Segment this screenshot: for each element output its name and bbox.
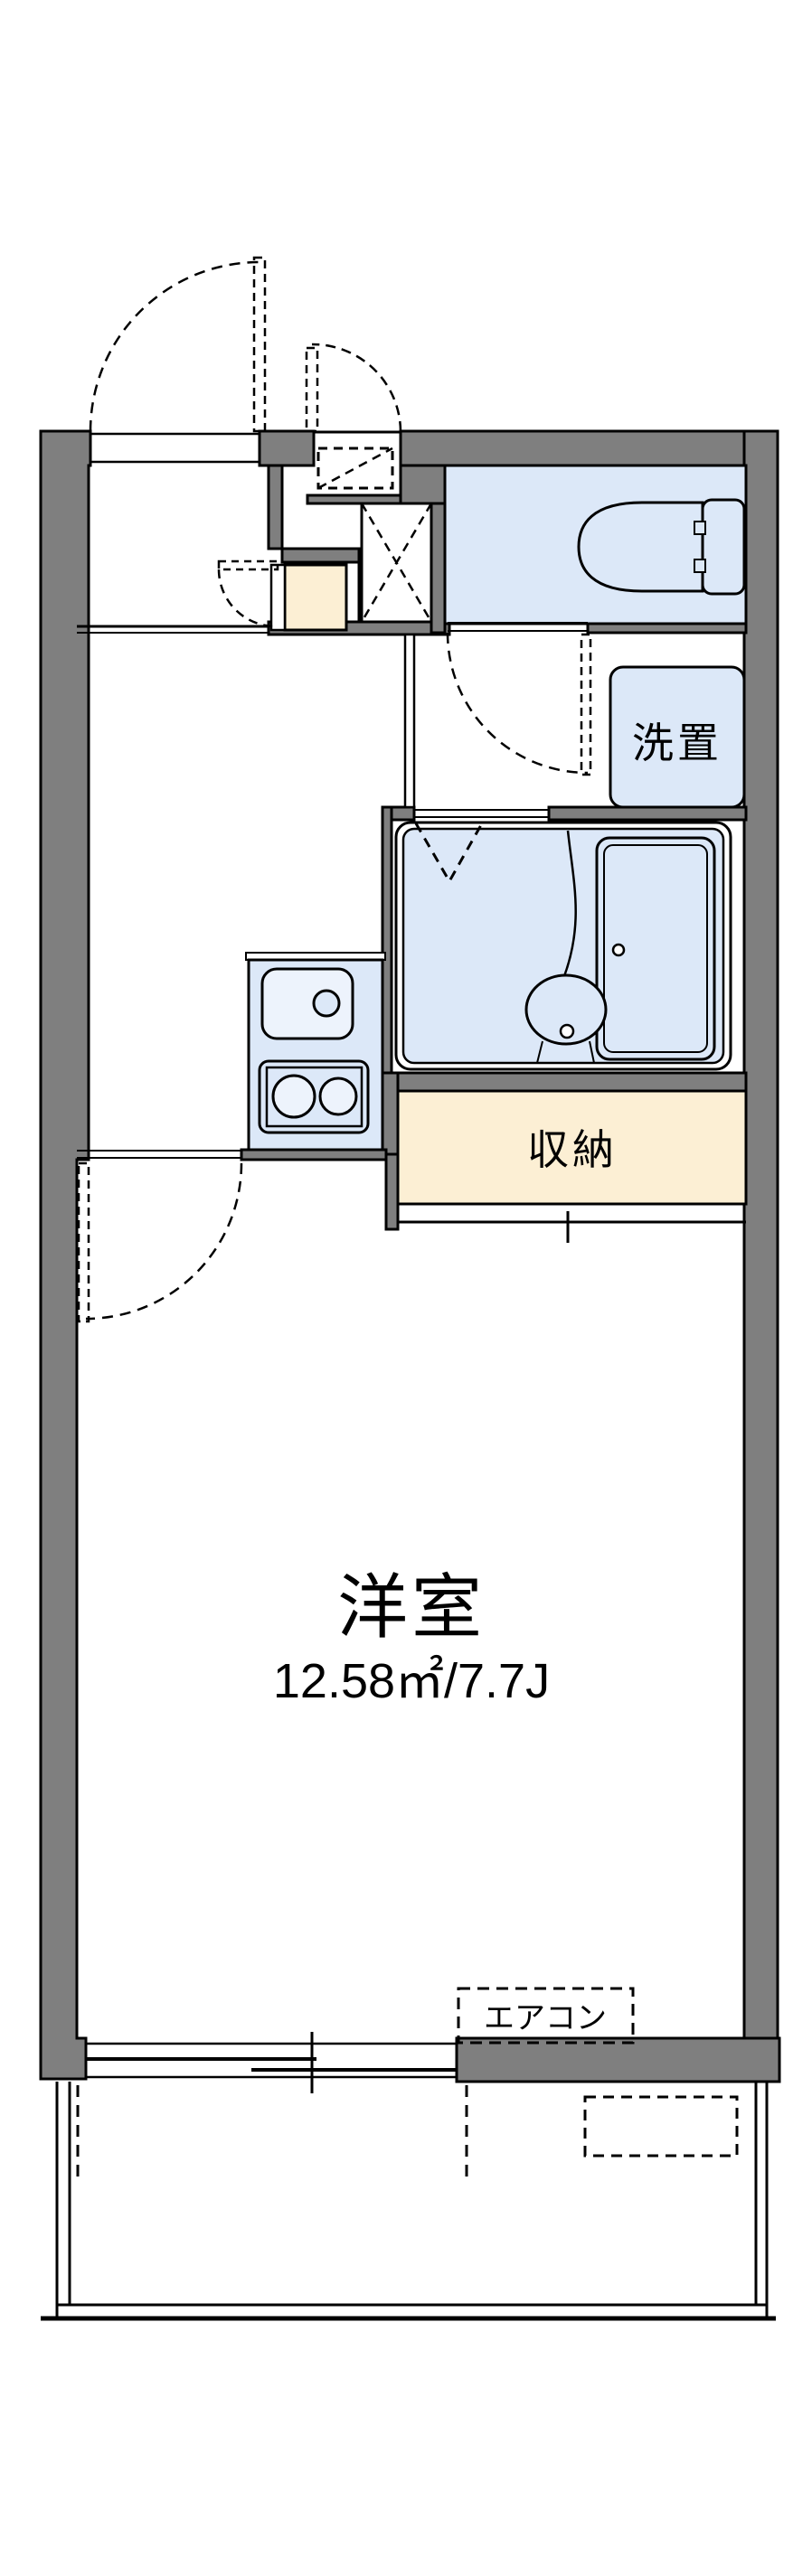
washroom-partition xyxy=(405,635,414,807)
closet-wall-stub xyxy=(386,1154,398,1229)
bath-bottom-wall xyxy=(382,1073,746,1091)
right-wall xyxy=(744,431,778,2082)
aircon-label: エアコン xyxy=(484,2001,607,2035)
laundry-space-label: 洗置 xyxy=(632,719,722,766)
toilet-left-wall xyxy=(431,503,445,633)
kitchen-unit xyxy=(246,953,385,1150)
bath-area xyxy=(396,810,731,1069)
bath-top-wall-right xyxy=(549,807,746,820)
main-room-area-label: 12.58㎡/7.7J xyxy=(273,1654,550,1708)
hall-wall-h1 xyxy=(282,549,359,562)
entrance-closet-door xyxy=(271,565,285,630)
entrance-closet xyxy=(285,565,346,630)
floor-plan-page: 洗置 収納 xyxy=(0,0,812,2576)
top-wall-right xyxy=(401,431,778,465)
overhead-cabinet-icon xyxy=(318,448,392,488)
floor-plan: 洗置 収納 xyxy=(0,0,812,2576)
closet-left-wall xyxy=(382,1073,398,1154)
burner-left-icon xyxy=(273,1076,315,1117)
toilet-hinge-1 xyxy=(694,522,705,534)
toilet-hinge-2 xyxy=(694,559,705,572)
bathtub-drain-icon xyxy=(613,945,624,955)
main-room-label: 洋室 xyxy=(337,1567,486,1647)
faucet-icon xyxy=(314,991,339,1016)
niche-right-wall xyxy=(401,465,445,503)
hall-wall-v1 xyxy=(269,465,282,549)
burner-right-icon xyxy=(320,1078,356,1114)
bottom-wall-right xyxy=(457,2038,779,2082)
toilet-tank xyxy=(703,500,744,594)
closet-label: 収納 xyxy=(527,1126,618,1173)
basin-drain-icon xyxy=(561,1025,573,1038)
dk-bottom-wall xyxy=(241,1150,386,1160)
background xyxy=(0,0,812,2576)
toilet-bowl-icon xyxy=(579,503,703,591)
top-wall-mid xyxy=(260,431,314,465)
